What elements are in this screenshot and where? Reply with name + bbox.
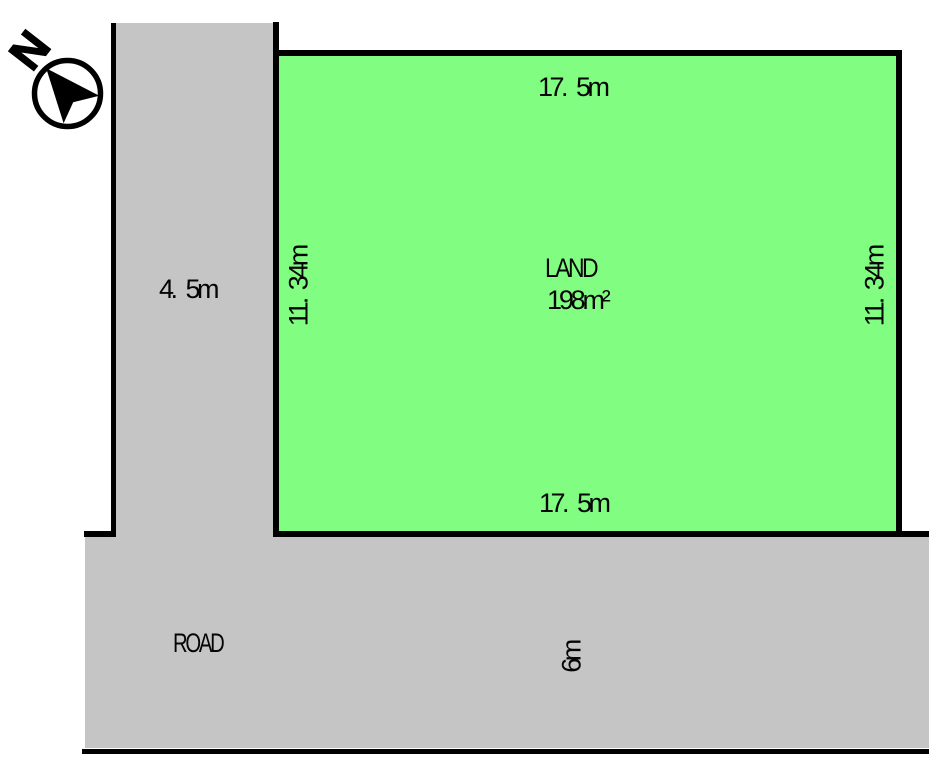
- svg-text:N: N: [0, 21, 60, 79]
